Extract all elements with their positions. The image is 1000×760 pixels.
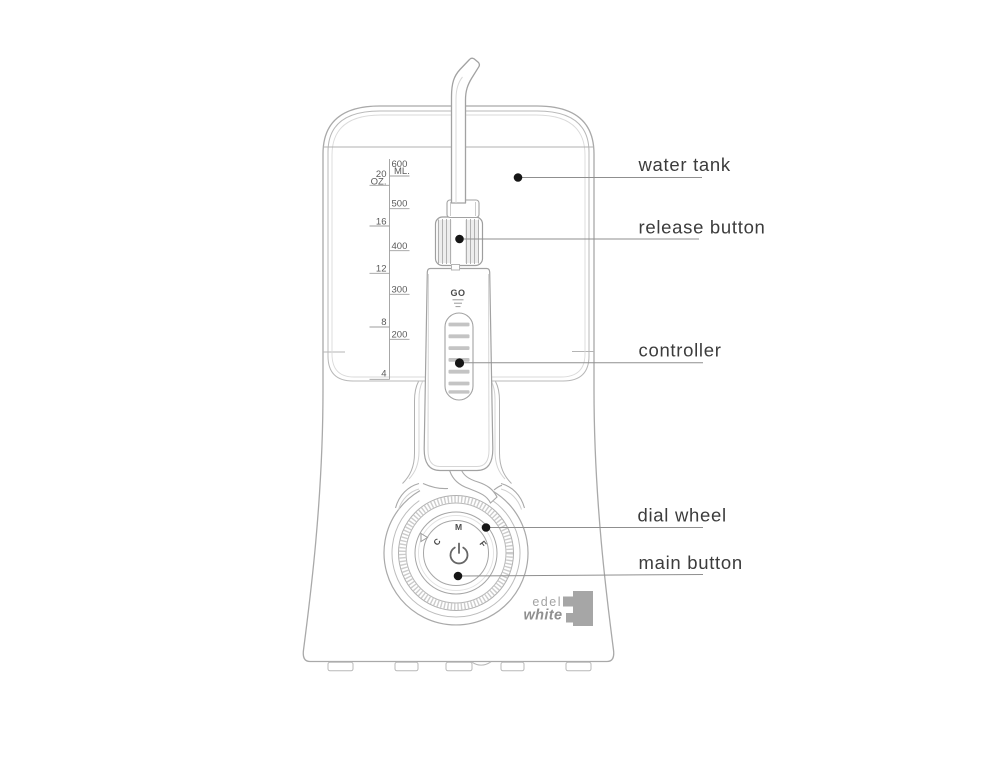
oz-12: 12 — [376, 264, 387, 275]
release-button — [436, 217, 483, 270]
product-diagram-page: 600 ML. 500 400 300 200 20 OZ. 16 12 8 4… — [0, 0, 1000, 760]
foot — [566, 662, 591, 671]
ridge — [449, 346, 470, 350]
label-controller: controller — [639, 340, 722, 361]
leader-dot-dial-wheel — [482, 523, 491, 532]
label-release-button: release button — [639, 217, 766, 238]
ml-unit: ML. — [394, 166, 410, 177]
controller-slider — [445, 313, 473, 400]
knurl-shade-right — [465, 220, 479, 263]
ridge — [449, 390, 470, 393]
callout-labels: water tank release button controller dia… — [638, 154, 766, 573]
bottom-notch — [472, 662, 492, 665]
oz-4: 4 — [381, 369, 386, 380]
handle: GO — [424, 269, 493, 471]
leader-dot-water-tank — [514, 173, 523, 182]
base-feet — [328, 662, 591, 671]
leader-dot-controller — [455, 358, 464, 367]
ridge — [449, 323, 470, 327]
label-dial-wheel: dial wheel — [638, 505, 727, 526]
ridge — [449, 334, 470, 338]
knurl-shade-left — [438, 220, 452, 263]
ridge — [449, 370, 470, 374]
ml-200: 200 — [392, 330, 408, 341]
leader-dot-main-button — [454, 572, 463, 581]
leader-dot-release-button — [455, 235, 464, 244]
label-water-tank: water tank — [638, 154, 731, 175]
water-flosser-diagram: 600 ML. 500 400 300 200 20 OZ. 16 12 8 4… — [0, 0, 1000, 760]
oz-unit: OZ. — [371, 177, 387, 188]
brand-logo: edel white — [523, 591, 593, 626]
dial-letter-m: M — [455, 522, 462, 532]
brand-white: white — [523, 608, 562, 624]
collar-connector — [452, 265, 460, 271]
foot — [395, 662, 418, 671]
ml-500: 500 — [392, 199, 408, 210]
foot — [328, 662, 353, 671]
foot — [501, 662, 524, 671]
ridge — [449, 382, 470, 386]
ml-300: 300 — [392, 285, 408, 296]
oz-8: 8 — [381, 317, 386, 328]
foot — [446, 662, 472, 671]
ml-400: 400 — [392, 241, 408, 252]
go-label: GO — [450, 288, 465, 298]
oz-16: 16 — [376, 217, 387, 228]
label-main-button: main button — [639, 552, 743, 573]
